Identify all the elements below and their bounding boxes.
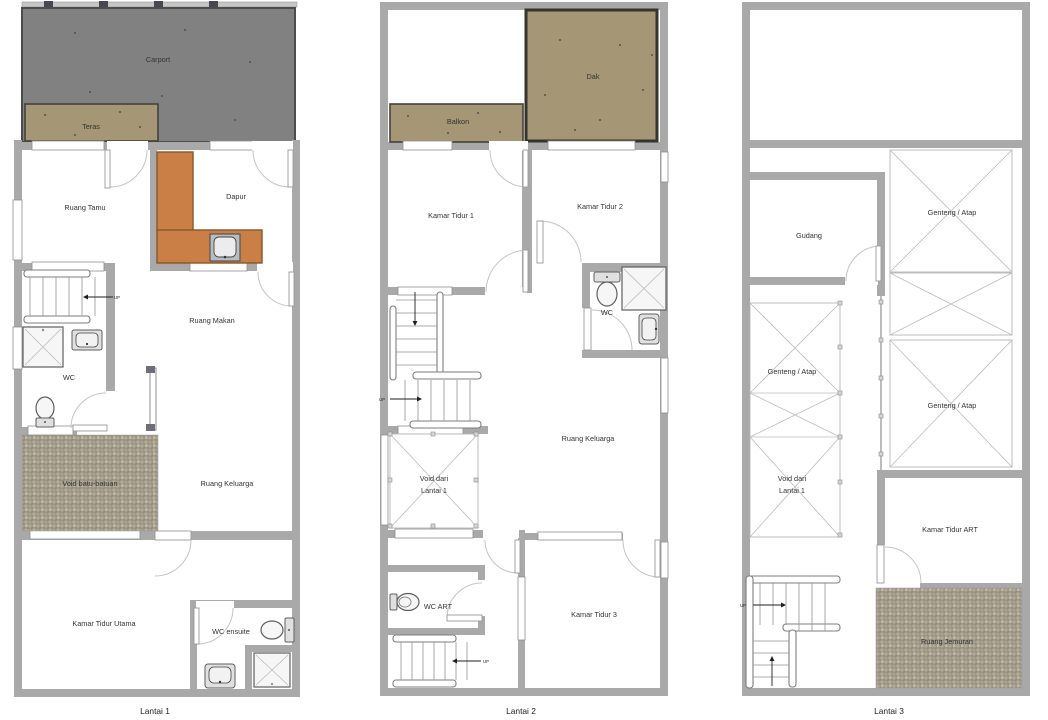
- label-void-line2: Lantai 1: [421, 486, 447, 495]
- floor1-title: Lantai 1: [140, 706, 170, 716]
- toilet-ensuite: [261, 618, 294, 642]
- wcart-fixtures: [390, 594, 419, 611]
- mid-railing: [879, 296, 883, 470]
- label-kamar-tidur-3: Kamar Tidur 3: [571, 610, 617, 619]
- label-wc-ensuite: WC ensuite: [212, 627, 250, 636]
- label-teras: Teras: [82, 122, 100, 131]
- wc-floor2-fixtures: [594, 267, 666, 344]
- shower-ensuite: [254, 653, 290, 687]
- label-void-batu: Void batu-batuan: [62, 479, 117, 488]
- label-genteng-3: Genteng / Atap: [928, 401, 977, 410]
- up-label: UP: [740, 603, 746, 608]
- kitchen-sink: [210, 234, 240, 261]
- label-ruang-keluarga-floor2: Ruang Keluarga: [562, 434, 616, 443]
- label-genteng-1: Genteng / Atap: [928, 208, 977, 217]
- label-carport: Carport: [146, 55, 170, 64]
- toilet: [36, 397, 54, 427]
- label-kamar-tidur-art: Kamar Tidur ART: [922, 525, 978, 534]
- stairs-floor2-upper: [390, 292, 443, 380]
- stairs-floor3: UP: [740, 576, 840, 688]
- up-label: UP: [114, 295, 120, 300]
- label-kamar-tidur-utama: Kamar Tidur Utama: [72, 619, 136, 628]
- sink: [72, 330, 102, 350]
- stairs-floor1: UP: [24, 270, 120, 323]
- partition-glass: [146, 366, 156, 431]
- shower-floor2: [622, 267, 666, 310]
- label-ruang-jemuran: Ruang Jemuran: [921, 637, 973, 646]
- label-wc-floor2: WC: [601, 308, 613, 317]
- kitchen-counter: [157, 152, 262, 263]
- floor2-title: Lantai 2: [506, 706, 536, 716]
- genteng-atap-mid-small: [890, 273, 1012, 335]
- label-genteng-2: Genteng / Atap: [768, 367, 817, 376]
- toilet-floor2: [594, 272, 620, 306]
- label-gudang: Gudang: [796, 231, 822, 240]
- floorplan-svg: UP: [0, 0, 1048, 720]
- floor1-plan: UP: [13, 1, 300, 716]
- label-ruang-makan: Ruang Makan: [189, 316, 234, 325]
- label-dapur: Dapur: [226, 192, 246, 201]
- label-void3-line2: Lantai 1: [779, 486, 805, 495]
- floor2-doors: [447, 141, 660, 621]
- label-balkon: Balkon: [447, 117, 469, 126]
- label-wc-art: WC ART: [424, 602, 453, 611]
- shower-stall: [23, 327, 63, 367]
- label-kamar-tidur-2: Kamar Tidur 2: [577, 202, 623, 211]
- sink-floor2: [639, 314, 659, 344]
- up-label: UP: [379, 397, 385, 402]
- floor3-title: Lantai 3: [874, 706, 904, 716]
- stairs-floor2-bottom: UP: [393, 635, 489, 687]
- label-ruang-tamu: Ruang Tamu: [64, 203, 105, 212]
- label-ruang-keluarga: Ruang Keluarga: [201, 479, 255, 488]
- floor2-plan: UP: [379, 2, 668, 716]
- label-kamar-tidur-1: Kamar Tidur 1: [428, 211, 474, 220]
- sink-ensuite: [205, 664, 235, 688]
- up-label: UP: [483, 659, 489, 664]
- label-void-line1: Void dari: [420, 474, 449, 483]
- label-wc: WC: [63, 373, 75, 382]
- floor3-plan: UP Gudang Genteng / Atap Genteng / Atap …: [740, 2, 1030, 716]
- label-void3-line1: Void dari: [778, 474, 807, 483]
- floorplan-canvas: UP: [0, 0, 1048, 720]
- left-strip-genteng-void: [750, 301, 842, 537]
- label-dak: Dak: [587, 72, 600, 81]
